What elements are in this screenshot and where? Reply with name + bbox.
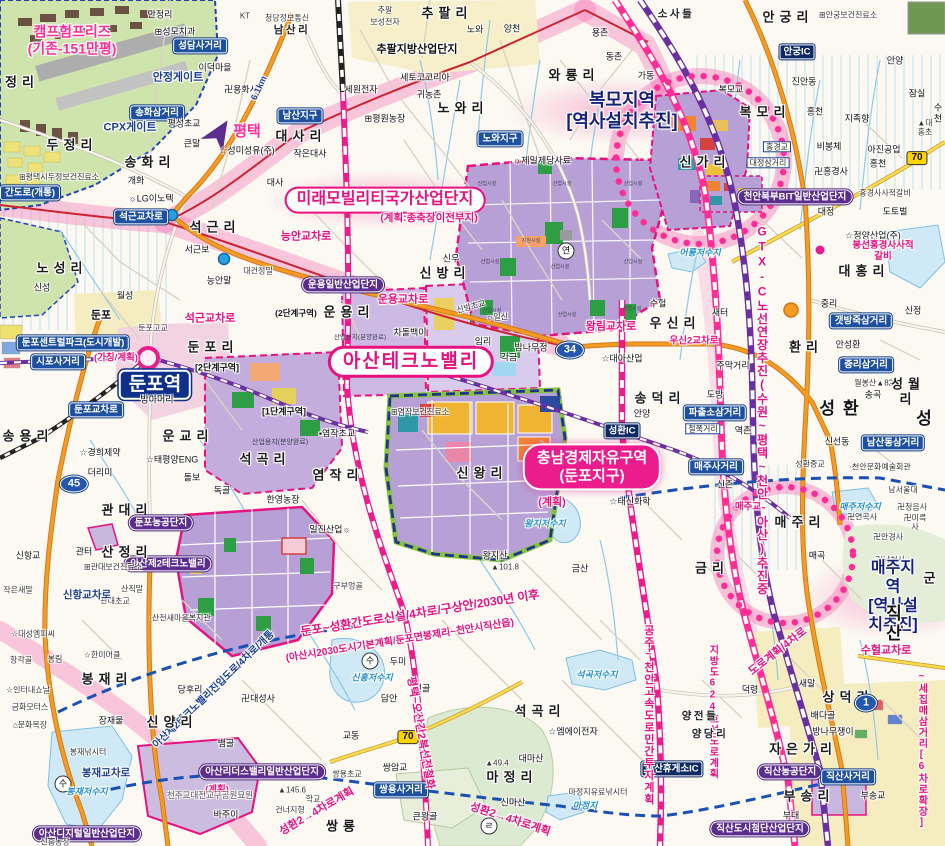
route-70-ne: 70	[906, 151, 927, 165]
label-layer: 캠프험프리즈 (기존-151만평)정리안정리KT청당정보통신성담사거리⊞성모치과…	[0, 0, 945, 846]
hwy-gongju-cheonan: 공주~천안고속도로민간투자계획	[642, 625, 655, 806]
place-sinbang-school: 신방초교	[456, 299, 487, 316]
place-jeiljedang: ☼제일제당사료	[513, 156, 571, 167]
place-bamnamujeong: 밤나무정	[514, 343, 547, 354]
place-jijokhyang: 지족향	[845, 114, 870, 125]
place-taepyeong-eng: ☆태평양ENG	[146, 455, 198, 466]
badge-songhwa: 송화삼거리	[130, 105, 184, 120]
water-maeju-res: 매주저수지	[839, 502, 880, 513]
pink-seokgeun-jct: 석근교차로	[185, 313, 236, 326]
badge-unyong-complex: 운용일반산업단지	[302, 277, 384, 292]
place-keunwanggol: 큰왕골	[413, 812, 438, 823]
region-dujeongri: 두정리	[47, 137, 98, 152]
place-dobang: 도방	[707, 390, 724, 401]
place-dokgol: 독골	[214, 486, 231, 497]
place-chupal: 추팔	[378, 5, 393, 14]
rail-pyeongtaek-osan: 평택~오산간2복선전철화	[404, 676, 437, 790]
place-sinseong: 신성	[34, 283, 51, 294]
region-namsanri: 남산리	[274, 24, 310, 36]
badge-seokgeun-jct: 석근교차로	[114, 209, 168, 224]
pink-bongseon-stele: 봉선홍경사사적갈비	[852, 240, 914, 262]
water-eoryong-res: 어룡저수지	[679, 248, 720, 259]
region-unyongri: 운용리	[324, 304, 375, 319]
box-honggyeonggyo: 홍경교	[763, 141, 791, 152]
place-daegeon: 대건정밀	[243, 266, 272, 275]
region-waryongri: 와룡리	[549, 67, 600, 82]
place-jinandong: 진안동	[792, 77, 817, 88]
road-seonghwan24-b: 성환2→4차로계획	[468, 801, 552, 839]
pink-unyong-jct: 운용교차로	[378, 294, 429, 307]
place-gwandae-school: 관대초교	[100, 596, 129, 605]
region-yangdangri: 양당리	[692, 728, 728, 740]
place-dujeong-clinic: ⊞평택시두정보건진료소	[19, 172, 99, 181]
place-gakgeum: 각금	[501, 353, 518, 364]
badge-jiksan-cheomdan: 직산도시첨단산업단지	[710, 821, 809, 836]
place-bangameori: 방아머리	[140, 395, 173, 406]
place-jangjaeul: 장재울	[99, 716, 124, 727]
badge-jiksan-sageori: 직산사거리	[821, 769, 875, 784]
place-pyeongwon-farm: ⊞평원농장	[365, 114, 406, 125]
region-seokgokri-s: 석곡리	[515, 703, 566, 718]
place-sinjeong: 신정	[905, 306, 922, 317]
place-gwandae-clinic: ⊞관대보건진료소	[84, 562, 142, 571]
bokmo-station-plan: 복모지역 [역사설치추진]	[566, 90, 677, 132]
place-bongrim: 봉림	[48, 654, 63, 663]
place-busonggyo: 부송교	[861, 791, 886, 802]
place-gyeonghui-pharm: ☆경희제약	[79, 448, 120, 459]
pink-maejugyo: 매주교	[735, 501, 761, 512]
map-viewport[interactable]: 캠프험프리즈 (기존-151만평)정리안정리KT청당정보통신성담사거리⊞성모치과…	[0, 0, 945, 846]
pill-asan-technovalley: 아산테크노밸리	[328, 346, 494, 378]
place-hanyoung-farm: 한영농장	[266, 495, 299, 506]
cell-ind-6: 산업시설	[624, 260, 642, 266]
place-geumsan: 금산	[572, 564, 589, 575]
place-jeongyang: ☆정양산업(주)	[845, 231, 900, 242]
badge-sipo-sageori: 시포사거리	[31, 354, 85, 369]
pill-mirae-mobility: 미래모빌리티국가산업단지	[285, 187, 486, 214]
place-dolbo: 돌보	[184, 473, 201, 484]
region-daesari: 대사리	[276, 128, 327, 143]
complex-chupal: 추팔지방산업단지	[377, 44, 458, 57]
place-gwanteo: 관터	[76, 547, 93, 558]
place-yongchon: 용촌	[592, 28, 609, 39]
place-daesa: 대사	[267, 178, 284, 189]
place-taesin: ☆태신화학	[609, 497, 650, 508]
region-sangdeokri: 상덕리	[823, 689, 874, 704]
place-yangcheon: 양천	[504, 24, 521, 35]
place-yeomjak-school: ▪염작초교	[319, 429, 355, 440]
badge-jiksan-nonggong: 직산농공단지	[758, 764, 822, 779]
sym-r: ㄹ	[481, 818, 498, 835]
region-seonghwan: 성환	[819, 399, 866, 419]
place-hakgyo: 학교	[306, 794, 321, 803]
place-seto-korea: 세토코코리아	[400, 73, 450, 84]
place-jamsil: 잠실	[909, 89, 926, 100]
region-bokmori: 복모리	[740, 104, 791, 119]
place-jageun-daesa: 작은대사	[293, 149, 326, 160]
badge-dunpo-nonggong: 둔포농공단지	[129, 515, 193, 530]
water-seokgok-res: 석곡저수지	[576, 670, 617, 681]
ic-seonghwan: 성환IC	[605, 423, 640, 438]
place-gwinongchon: 귀농촌	[417, 90, 442, 101]
place-seogeunbo: 서근보	[185, 245, 210, 256]
region-usinri: 우신리	[650, 315, 701, 330]
badge-namsandong: 남산동삼거리	[862, 435, 924, 450]
region-songdeokri: 송덕리	[635, 390, 686, 405]
place-anyang2: 안양	[634, 409, 651, 420]
gate-anjeong: 안정게이트	[153, 72, 204, 85]
place-cheongeumsa: 卍청음사	[897, 502, 927, 511]
cell-sanup-sold-2: 산업용지(분양완료)	[334, 334, 386, 342]
badge-dunpo-jct: 둔포교차로	[69, 402, 123, 417]
place-peak494: ▲49.4	[485, 758, 509, 767]
badge-seongdam: 성담사거리	[173, 38, 227, 53]
road-sejipmae: ~세집매삼거리[6차로확장]	[915, 671, 927, 829]
place-daeseongsa: 卍대성사	[241, 694, 275, 705]
region-jaeungari: 자은가리	[769, 741, 837, 756]
place-sewon: 세원전자	[344, 85, 377, 96]
badge-gandoro: 간도로(개통)	[0, 185, 60, 200]
badge-dunpo-central-park: 둔포센트럴파크(도시개발)	[17, 335, 129, 350]
place-honggyeongsa: 卍홍경사	[814, 167, 848, 178]
cell-ind-2: 산업시설	[553, 182, 571, 188]
region-nowari: 노와리	[438, 100, 489, 115]
place-hongcheon2: 홍천	[870, 159, 887, 170]
road-asan2030: (아산시2030도시기본계획/둔포면봉제리~천안시직산읍)	[285, 617, 515, 665]
region-seong: 성	[916, 409, 940, 429]
place-iljin: 일진산업☼	[309, 525, 350, 536]
place-angung-clinic: ⊞안궁보건진료소	[819, 10, 877, 19]
place-wolseong: 월성	[117, 291, 134, 302]
place-baemgol: 뱀골	[218, 739, 235, 750]
place-anseonghwan: 안성환	[836, 340, 861, 351]
region-singari: 신가리	[680, 154, 731, 169]
place-imri: 임리	[475, 337, 492, 348]
place-hanggakgol: 항각골	[10, 655, 32, 664]
place-sinhanggyo: 신항교	[16, 551, 41, 562]
place-angyeongsa: 卍안경사	[873, 532, 903, 541]
cell-ind-5: 산업시설	[551, 265, 569, 271]
place-kt: KT	[240, 11, 250, 20]
place-boseong: 보성전자	[370, 17, 399, 26]
place-bangnamujaengi: 방나무쟁이	[812, 727, 853, 738]
route-70-sw: 70	[397, 730, 418, 744]
region-seokgokri-n: 석곡리	[240, 451, 291, 466]
place-gyodong: 교동	[343, 731, 360, 742]
badge-asan2-techno: 아산제2테크노밸리	[124, 556, 211, 571]
place-nakcheonsa: 卍낙천사	[875, 555, 905, 564]
place-baedagol: 배다골	[811, 711, 836, 722]
place-seotgol: 섯골	[414, 684, 431, 695]
place-gaehwa: 개화	[128, 176, 145, 187]
place-bongjae-fishing: 봉재낚시터	[70, 747, 107, 756]
place-chadolbaegi: 차돌백이	[393, 328, 426, 339]
region-yangjeondeul: 양전들	[682, 710, 718, 722]
place-sanjeon-welfare: ·산전새마을복지관	[149, 613, 211, 622]
place-yonghwasa: 卍용화사	[224, 85, 258, 96]
place-hanmi: ☆한미머클	[84, 650, 121, 659]
route-1: 1	[855, 695, 877, 712]
badge-asan-leaders: 아산리더스밸리일반산업단지	[199, 764, 325, 779]
place-daehongcho: ▲대홍초	[915, 119, 935, 138]
gtx-c-extension: GTX-C노선연장추진(수원~평택~천안~아산)추진중	[755, 225, 769, 596]
place-saeteo: 새터	[712, 308, 729, 319]
place-anyang1: 안양	[887, 56, 904, 67]
region-maejuri: 매주리	[775, 514, 826, 529]
badge-cheonan-bukbu-bit: 천안북부BIT일반산업단지	[738, 189, 853, 204]
water-majeongji: 마정지	[573, 801, 598, 812]
sym-su-2: 수	[55, 776, 72, 793]
place-sinchon: 신촌	[717, 480, 734, 491]
place-sinmasan: 신마산	[501, 798, 526, 809]
place-sinu: 신우	[443, 254, 460, 265]
place-sinseondong: 신선동	[825, 437, 850, 448]
phase-1: [1단계구역]	[262, 407, 306, 418]
region-sinyangri: 신양리	[147, 714, 198, 729]
badge-nowa-jigu: 노와지구	[478, 131, 523, 146]
place-daeseong-mpc: ☆대성엠피씨	[11, 629, 55, 638]
place-hongcheon1: 홍천	[807, 107, 824, 118]
cell-ind-9: 산업시설	[623, 307, 641, 313]
place-peak1456: ▲145.6	[278, 785, 306, 794]
place-danghuri: 당후리	[178, 685, 203, 696]
region-sosadeul: 소사들	[658, 8, 694, 20]
badge-jungri-samgeori: 중리삼거리	[839, 357, 893, 372]
region-ssangryong: 쌍룡	[326, 818, 360, 833]
pink-pyeongtaek: 평택	[233, 123, 261, 141]
cell-ind-4: 산업시설	[481, 260, 499, 266]
route-45: 45	[60, 476, 88, 493]
region-chupalri: 추팔리	[422, 5, 473, 20]
region-seongwolri: 성월리	[890, 377, 927, 408]
region-angungri: 안궁리	[763, 9, 814, 24]
pink-usin2-jct: 우신2교차로	[670, 335, 719, 346]
pink-mirae-sub: (계획:종축장이전부지)	[380, 212, 477, 224]
place-gubueonggol: 구부엉골	[333, 581, 362, 590]
place-deorimi: 더리미	[88, 468, 113, 479]
cell-ind-7: 산업시설	[483, 309, 501, 315]
pink-plan-fez: (계획)	[538, 497, 566, 510]
place-budae: 부대	[783, 811, 800, 822]
place-bokmogyo: 복모교	[719, 85, 744, 96]
place-mireuksa: 卍미륵사	[900, 514, 930, 533]
place-wolbongsan: 월봉산▲82.6	[854, 378, 900, 387]
place-munhwa-farm: ⌂문화목장	[13, 720, 47, 729]
place-cheonjugyo-cemetery: 천주교대전교구공원묘원	[167, 790, 253, 800]
place-daea: ☆대아산업	[601, 354, 642, 365]
region-hwanri: 환리	[789, 339, 823, 354]
road-seonghwan24-a: 성환2→4차로계획	[277, 785, 356, 838]
cell-ind-1: 산업시설	[478, 182, 496, 188]
jct-sinhang: 신항교차로	[63, 589, 111, 601]
place-honggyeongsa-stele: 홍경사사적갈비	[859, 188, 911, 197]
place-deokryeong: 덕령	[742, 685, 759, 696]
place-suheol: 수헐	[650, 299, 667, 310]
place-saemal: 새말	[799, 679, 816, 690]
place-anjeongri: 안정리	[148, 10, 173, 21]
place-nowa: 노와	[467, 25, 484, 36]
place-seonghwan-school: 성환중교	[795, 459, 824, 468]
place-songgok: 송곡	[865, 390, 882, 401]
phase-2-west: (2단계구역)	[275, 308, 317, 318]
region-songhwari: 송화리	[125, 154, 176, 169]
sym-su-1: 수	[362, 653, 379, 670]
place-lg-innotek: ☼LG이노텍	[128, 194, 173, 205]
place-ssangamgyo: 쌍암교	[383, 763, 408, 774]
road-asan2-access: 아산제2테크노밸리진입도로/4차로/개통	[151, 629, 277, 751]
place-pyeongseong-school: 평성초교	[167, 119, 200, 130]
sym-yeon: 연	[558, 243, 575, 260]
badge-asan-digital: 아산디지털일반산업단지	[33, 826, 141, 841]
region-jiksan: 직산	[875, 604, 922, 644]
cell-ind-3: 산업시설	[624, 182, 642, 188]
place-yeongoksa: 卍연곡사	[847, 512, 877, 521]
water-bongjae-res: 봉재저수지	[66, 787, 107, 798]
camp-humphreys-label: 캠프험프리즈 (기존-151만평)	[28, 23, 117, 56]
pink-sipo-plan: (가칭/계획)	[94, 352, 138, 363]
water-sinheung-res: 신흥저수지	[351, 673, 392, 684]
pink-suheol-jct: 수헐교차로	[861, 645, 912, 658]
place-majeongji-fishing: 마정지유료낚시터	[569, 787, 628, 796]
place-yeomjak-clinic: ⊞염작보건진료소	[391, 407, 449, 416]
place-gadong: 가동	[638, 71, 655, 82]
badge-namsan-jigu: 남산지구	[278, 108, 323, 123]
region-dunpori: 둔포리	[188, 339, 239, 354]
route-34: 34	[556, 342, 584, 359]
dist-61km: 6.1km	[249, 74, 269, 102]
place-peak1018: ▲101.8	[491, 562, 519, 571]
place-daman: 담안	[381, 694, 398, 705]
road-dunpo-seonghwan: 둔포~성환간도로신설/4차로/구상안/2030년 이후	[300, 587, 541, 639]
gate-cpx: CPX게이트	[104, 122, 157, 135]
region-daehongri: 대홍리	[839, 263, 890, 278]
region-jeongri: 정리	[5, 74, 39, 89]
place-daemasan: 대마산	[519, 754, 544, 765]
place-jageun-saemal: 작은새말	[3, 585, 32, 594]
place-ajin: 아진공업	[867, 145, 900, 156]
pink-neungan-jct: 능안교차로	[281, 231, 332, 244]
place-neunganmal: 능안말	[207, 276, 232, 287]
box-daejeong-samgeori: 대정삼거리	[747, 157, 790, 168]
place-dunpo-town: 둔포	[91, 310, 111, 323]
pill-chungnam-fez: 충남경제자유구역 (둔포지구)	[523, 443, 661, 490]
place-ma-electronics: ☆엠에이전자	[548, 727, 597, 738]
region-sinwangri: 신왕리	[457, 465, 508, 480]
place-keunmal: 큰말	[184, 139, 201, 150]
cell-sanup-sold-1: 산업용지(분양완료)	[252, 439, 308, 447]
region-geumri: 금리	[695, 560, 729, 575]
pink-wangrim-jct: 왕림교차로	[586, 321, 637, 334]
badge-maeju-sageori: 매주사거리	[689, 459, 743, 474]
place-jumakgeori: 주막거리	[716, 361, 749, 372]
place-cheongdang-telecom: 청당정보통신	[265, 13, 309, 22]
region-gun: 군	[924, 570, 941, 585]
region-noseongri: 노성리	[37, 260, 88, 275]
place-wangjisan: 왕지산	[483, 551, 508, 562]
place-dongchon: 동촌	[606, 52, 623, 63]
ic-angung: 안궁IC	[780, 44, 815, 59]
region-songyongri: 송용리	[3, 428, 54, 443]
region-busongri: 부송리	[784, 788, 835, 803]
region-majeongri: 마정리	[487, 769, 538, 784]
place-seongmo-clinic: ⊞성모치과	[155, 27, 196, 38]
maeju-station-plan: 매주지역 [역사설치추진]	[867, 559, 919, 635]
place-international: ☆인터내쇼날	[6, 685, 50, 694]
place-ideok-maeul: 이덕마을	[198, 63, 231, 74]
pink-plan-leaders: (계획)	[205, 784, 229, 795]
place-sucheon: 수천	[934, 102, 942, 123]
region-sanjeongri: 산정리	[102, 544, 153, 559]
region-bongjaeri: 봉재리	[82, 671, 133, 686]
ic-jiksan-rest: 직산휴게소IC	[641, 761, 702, 776]
badge-gaetbangjuk: 갯방죽삼거리	[830, 313, 892, 328]
badge-ssangyong: 쌍용사거리	[374, 782, 428, 797]
region-ungyori: 운교리	[163, 428, 214, 443]
place-daejeong: 대정	[818, 207, 835, 218]
place-dotobeol: 도토벌	[883, 207, 908, 218]
station-dunpo: 둔포역	[119, 370, 191, 400]
place-bajui: 바주이	[214, 810, 239, 821]
region-gwandaeri: 관대리	[102, 502, 153, 517]
place-maegok: 매곡	[809, 551, 826, 562]
place-seongmi: ☆성미성유(주)	[219, 146, 274, 157]
region-seokgeunri: 석근리	[190, 219, 241, 234]
road-plan-4lane: 도로계획/4차로	[746, 625, 809, 678]
region-yeomjakri: 염작리	[313, 467, 364, 482]
place-cheonan-art-hall: ·천안문화예술회관	[849, 462, 911, 471]
region-sinbangri: 신방리	[420, 265, 471, 280]
place-sinheung-farm: 신흥농장	[40, 837, 69, 846]
box-cheoljjuk: 철쭉거리	[685, 423, 720, 434]
place-dumi: 두미	[390, 657, 407, 668]
place-ilsin: ☼일신	[486, 312, 508, 321]
place-sanjikmal: 산직말	[121, 584, 143, 593]
badge-pachulso: 파출소삼거리	[684, 405, 746, 420]
cell-support: 지원시설	[522, 239, 540, 245]
place-dunpo-highschool: 둔포고교	[138, 323, 167, 332]
jct-bongjae: 봉재교차로	[82, 767, 130, 779]
cell-ind-8: 산업시설	[558, 313, 576, 319]
place-geonneojihyeong: 건너지형	[275, 805, 304, 814]
road-jibangdo624: 지방도624호선도로계획	[706, 645, 718, 780]
place-jungri: 중리	[821, 299, 838, 310]
place-namseoul-univ: 남서울대	[888, 485, 917, 494]
water-wangji-res: 왕지저수지	[524, 519, 565, 530]
place-ssangyongcho: 쌍용초교	[332, 769, 361, 778]
place-geumhwa-motors: 금화모터스	[12, 702, 49, 711]
place-bibongche: 비봉체	[817, 142, 842, 153]
place-yeokchon: 역촌	[735, 426, 752, 437]
phase-2-east: [2단계구역]	[195, 363, 239, 374]
